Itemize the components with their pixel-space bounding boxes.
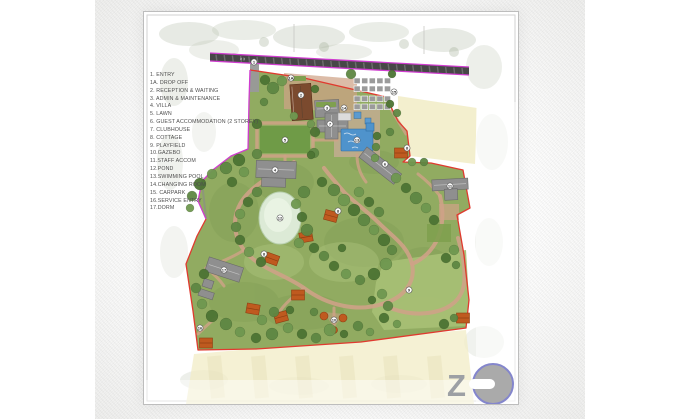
z-logo: Z (447, 364, 513, 404)
legend-item: 11.STAFF ACCOM (150, 158, 270, 166)
marker-entry: 1 (251, 59, 257, 65)
marker-service-entry: 16 (197, 325, 203, 331)
svg-text:1A: 1A (288, 75, 293, 80)
road-label: # 3 (240, 57, 245, 61)
marker-pond: 12 (277, 215, 283, 221)
marker-gazebo: 10 (331, 317, 337, 323)
marker-changing-room: 14 (341, 105, 347, 111)
screenshot-canvas: # 3 (0, 0, 680, 419)
plan-sheet: # 3 (143, 11, 519, 405)
marker-cottage-b: 8 (335, 208, 341, 214)
legend-item: 12.POND (150, 166, 270, 174)
legend-item: 2. RECEPTION & WAITING (150, 88, 270, 96)
changing-room-building (338, 113, 351, 121)
legend-item: 1. ENTRY (150, 72, 270, 80)
cottage-building (246, 303, 261, 315)
marker-playfield: 9 (406, 287, 412, 293)
cottage-building (457, 313, 470, 323)
logo-notch (469, 379, 495, 389)
legend-item: 13.SWIMMING POOL (150, 174, 270, 182)
svg-text:13: 13 (355, 137, 360, 142)
legend-item: 17.DORM (150, 205, 270, 213)
legend: 1. ENTRY 1A. DROP OFF 2. RECEPTION & WAI… (150, 72, 270, 213)
marker-drop-off: 1A (288, 75, 294, 81)
legend-item: 3. ADMIN & MAINTENANCE (150, 96, 270, 104)
legend-item: 4. VILLA (150, 103, 270, 111)
legend-item: 7. CLUBHOUSE (150, 127, 270, 135)
marker-guest-accommodation: 6 (382, 161, 388, 167)
cottage-building (200, 338, 213, 348)
svg-text:12: 12 (278, 215, 283, 220)
legend-item: 16.SERVICE ENTRY (150, 198, 270, 206)
svg-text:16: 16 (198, 325, 203, 330)
svg-text:14: 14 (342, 105, 347, 110)
marker-clubhouse: 7 (327, 121, 333, 127)
legend-item: 14.CHANGING ROOM (150, 182, 270, 190)
marker-cottage-c: 8 (261, 251, 267, 257)
marker-admin: 3 (324, 105, 330, 111)
marker-dorm: 17 (221, 267, 227, 273)
legend-item: 15. CARPARK (150, 190, 270, 198)
marker-swimming-pool: 13 (354, 137, 360, 143)
marker-lawn: 5 (282, 137, 288, 143)
svg-text:17: 17 (222, 267, 227, 272)
legend-item: 6. GUEST ACCOMMODATION (2 STOREY) (150, 119, 270, 127)
legend-item: 9. PLAYFIELD (150, 143, 270, 151)
legend-item: 1A. DROP OFF (150, 80, 270, 88)
marker-carpark: 15 (391, 89, 397, 95)
marker-staff-accom: 11 (447, 183, 453, 189)
legend-item: 10.GAZEBO (150, 150, 270, 158)
marker-reception: 2 (298, 92, 304, 98)
legend-item: 5. LAWN (150, 111, 270, 119)
legend-item: 8. COTTAGE (150, 135, 270, 143)
marker-villa: 4 (272, 167, 278, 173)
staff-garden (427, 224, 451, 242)
svg-text:15: 15 (392, 89, 397, 94)
logo-letter-z: Z (447, 368, 466, 403)
cottage-building (292, 290, 305, 300)
marker-cottage-a: 8 (404, 145, 410, 151)
svg-text:10: 10 (332, 317, 337, 322)
